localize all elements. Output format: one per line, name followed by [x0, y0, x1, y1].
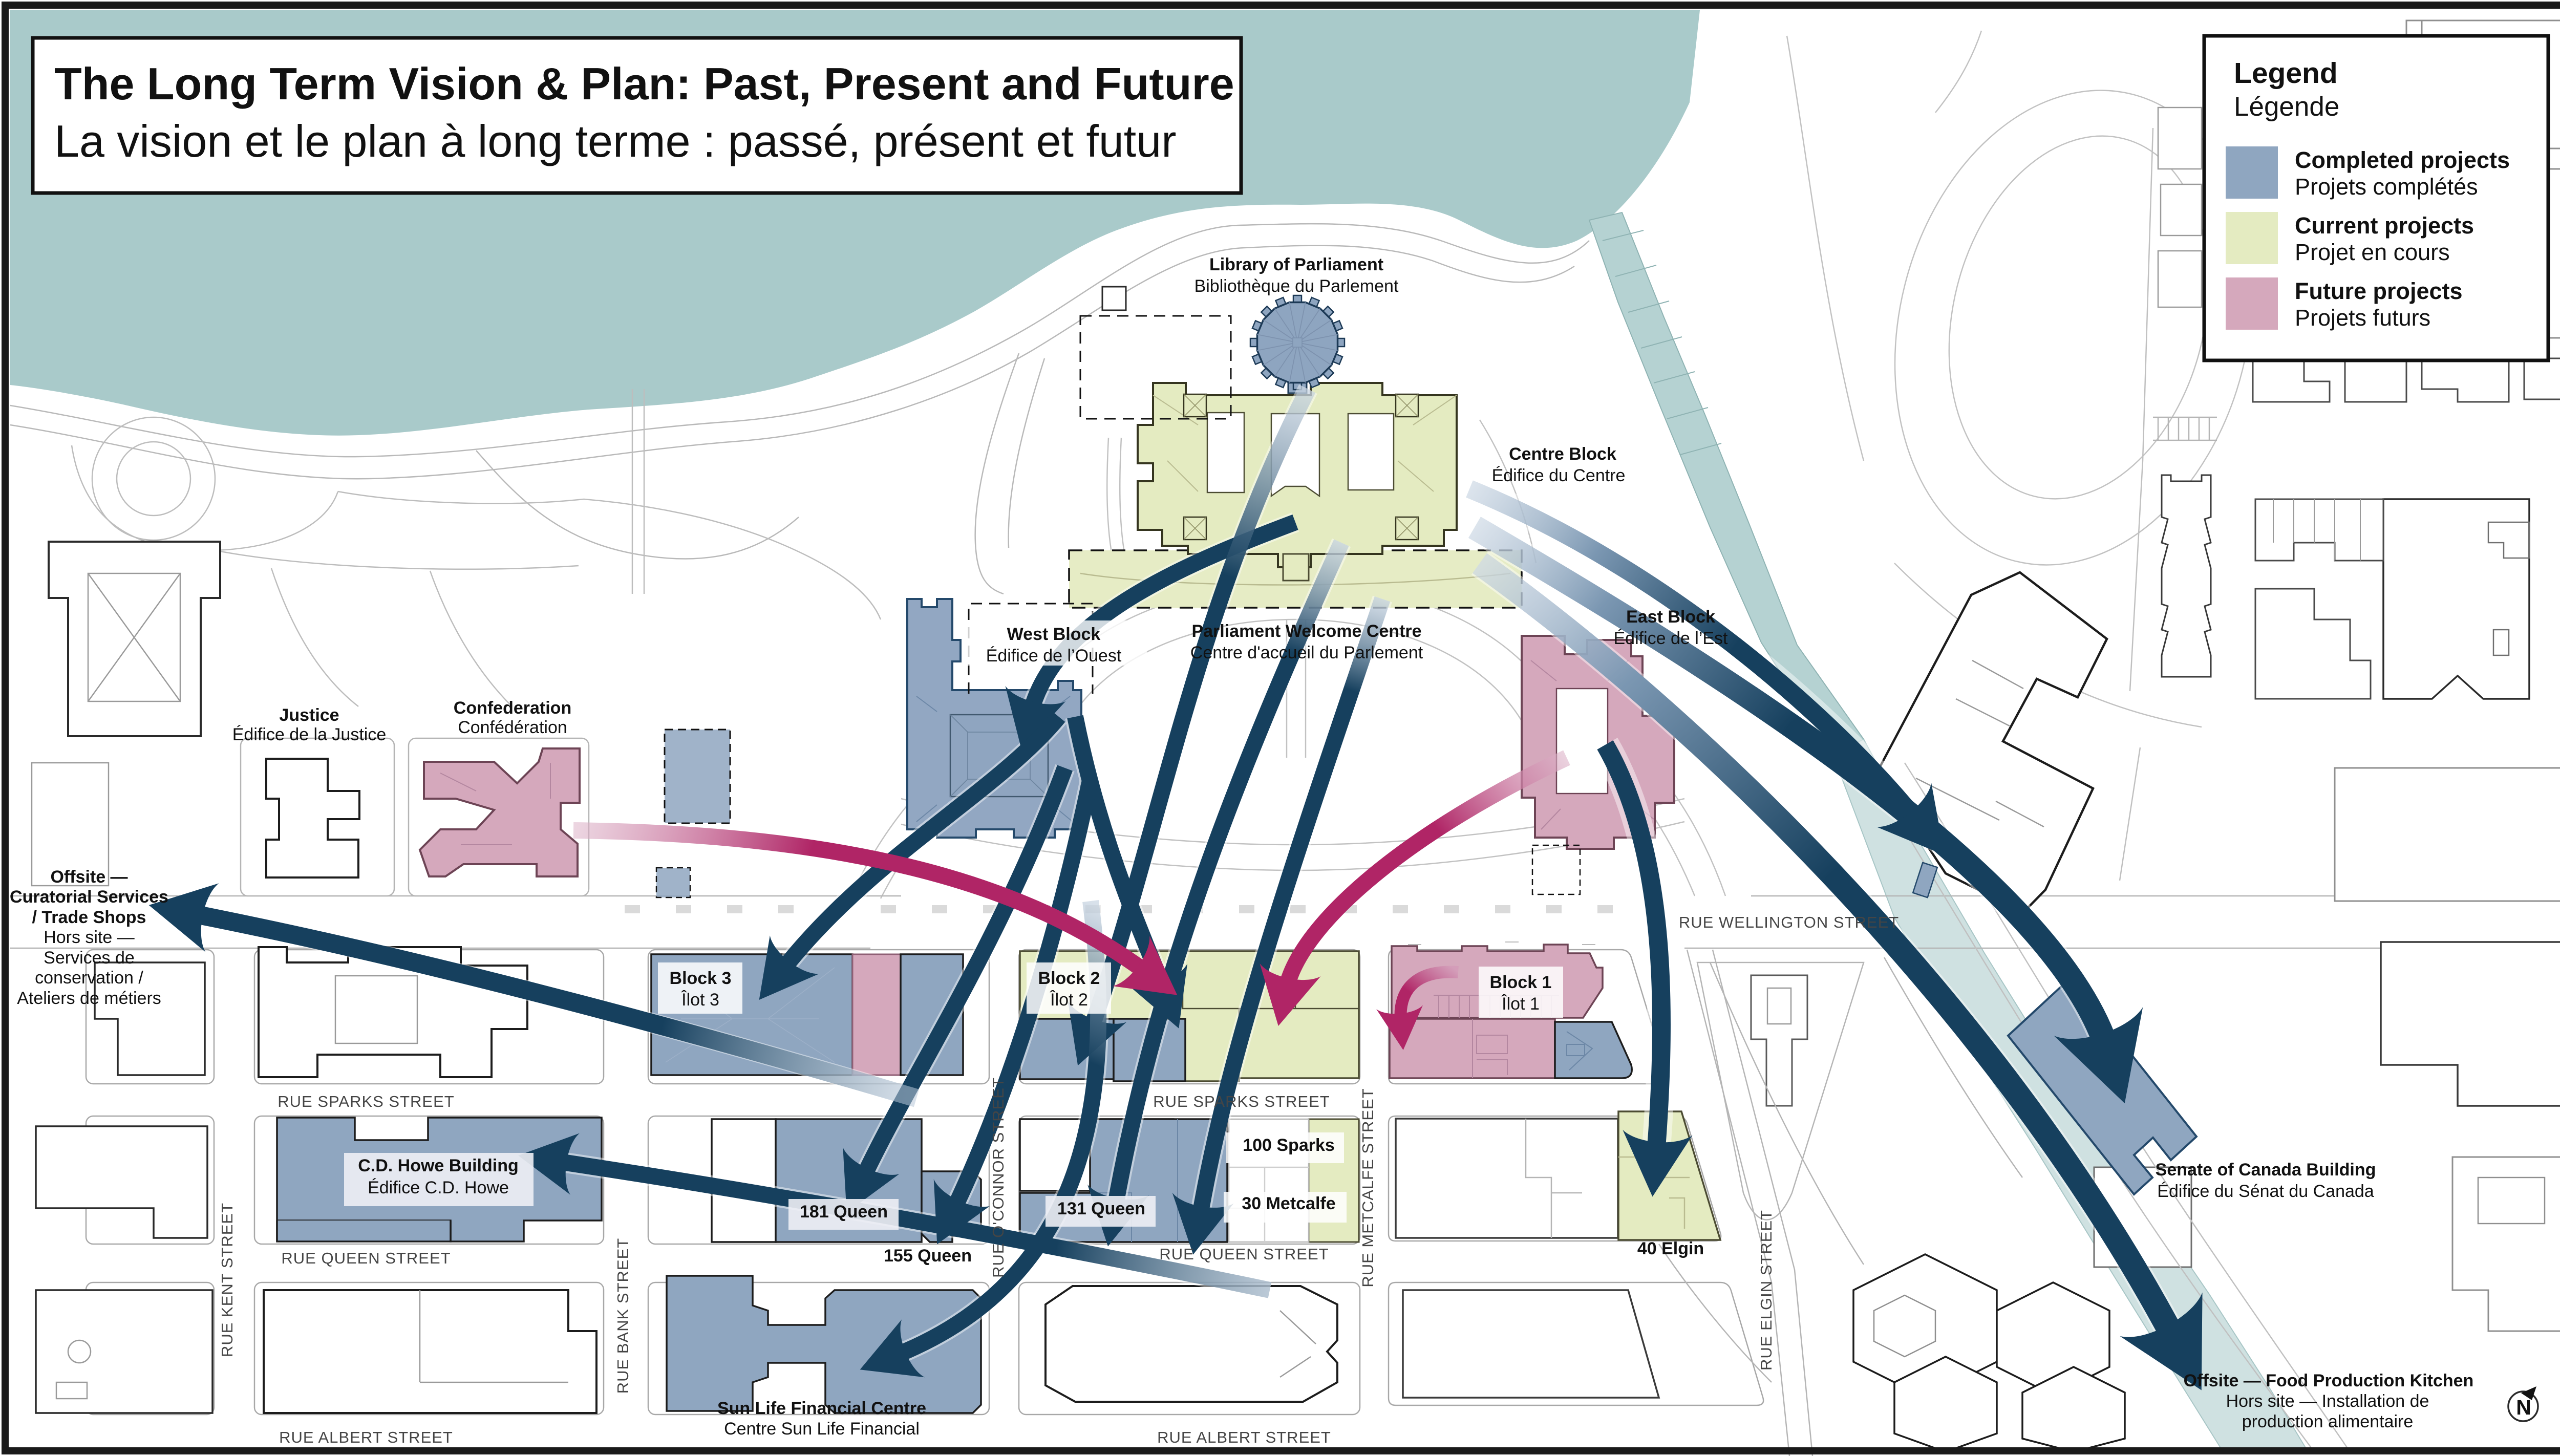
svg-text:Future projects: Future projects: [2295, 278, 2463, 304]
svg-text:Current projects: Current projects: [2295, 212, 2474, 239]
svg-text:RUE QUEEN STREET: RUE QUEEN STREET: [1159, 1245, 1329, 1263]
svg-text:Édifice du Sénat du Canada: Édifice du Sénat du Canada: [2157, 1182, 2374, 1201]
svg-text:Ateliers de métiers: Ateliers de métiers: [17, 989, 161, 1008]
svg-text:Library of Parliament: Library of Parliament: [1209, 255, 1383, 274]
svg-text:Offsite —: Offsite —: [50, 867, 127, 887]
svg-text:/ Trade Shops: / Trade Shops: [32, 908, 146, 927]
svg-text:Édifice de la Justice: Édifice de la Justice: [232, 725, 387, 744]
svg-text:30 Metcalfe: 30 Metcalfe: [1242, 1194, 1335, 1213]
svg-text:100 Sparks: 100 Sparks: [1243, 1136, 1335, 1155]
svg-text:Îlot 3: Îlot 3: [681, 990, 719, 1010]
svg-text:Block 2: Block 2: [1038, 969, 1100, 988]
svg-text:Block 1: Block 1: [1490, 973, 1552, 992]
svg-text:Centre d'accueil du Parlement: Centre d'accueil du Parlement: [1190, 643, 1423, 662]
svg-text:Legend: Legend: [2234, 57, 2338, 90]
svg-text:Édifice de l’Ouest: Édifice de l’Ouest: [986, 646, 1122, 666]
svg-text:RUE ALBERT STREET: RUE ALBERT STREET: [1157, 1428, 1331, 1446]
svg-text:Édifice de l’Est: Édifice de l’Est: [1614, 629, 1729, 648]
svg-text:East Block: East Block: [1626, 607, 1715, 627]
svg-text:Hors site — Installation de: Hors site — Installation de: [2226, 1391, 2429, 1411]
svg-text:Légende: Légende: [2234, 92, 2339, 122]
svg-text:Projet en cours: Projet en cours: [2295, 239, 2450, 265]
svg-text:Offsite — Food Production Kitc: Offsite — Food Production Kitchen: [2184, 1371, 2474, 1390]
svg-text:155 Queen: 155 Queen: [884, 1246, 972, 1266]
svg-text:Completed projects: Completed projects: [2295, 147, 2510, 173]
svg-text:Édifice C.D. Howe: Édifice C.D. Howe: [368, 1178, 509, 1197]
svg-text:N: N: [2516, 1396, 2531, 1419]
svg-text:West Block: West Block: [1007, 625, 1101, 644]
svg-text:Bibliothèque du Parlement: Bibliothèque du Parlement: [1194, 276, 1399, 296]
svg-text:conservation /: conservation /: [35, 968, 143, 988]
svg-text:Centre Block: Centre Block: [1509, 444, 1616, 464]
svg-text:The Long Term Vision & Plan: P: The Long Term Vision & Plan: Past, Prese…: [54, 58, 1234, 109]
svg-text:RUE QUEEN STREET: RUE QUEEN STREET: [281, 1249, 451, 1267]
svg-text:Parliament Welcome Centre: Parliament Welcome Centre: [1191, 622, 1421, 641]
svg-text:Services de: Services de: [44, 948, 135, 968]
svg-text:RUE ELGIN STREET: RUE ELGIN STREET: [1757, 1210, 1775, 1371]
svg-text:Projets futurs: Projets futurs: [2295, 305, 2430, 331]
svg-text:Sun Life Financial Centre: Sun Life Financial Centre: [717, 1399, 926, 1418]
svg-text:Confederation: Confederation: [454, 698, 571, 718]
svg-text:La vision et le plan à long te: La vision et le plan à long terme : pass…: [54, 116, 1177, 166]
svg-text:Hors site —: Hors site —: [44, 928, 135, 947]
svg-text:Justice: Justice: [279, 705, 339, 725]
svg-text:Curatorial Services: Curatorial Services: [10, 887, 168, 907]
svg-text:Îlot 2: Îlot 2: [1050, 990, 1088, 1010]
svg-text:Senate of Canada Building: Senate of Canada Building: [2156, 1160, 2376, 1180]
svg-text:Édifice du Centre: Édifice du Centre: [1492, 466, 1626, 485]
svg-text:RUE KENT STREET: RUE KENT STREET: [218, 1203, 236, 1357]
svg-text:181 Queen: 181 Queen: [800, 1202, 888, 1222]
svg-text:Block 3: Block 3: [670, 969, 732, 988]
svg-text:131 Queen: 131 Queen: [1057, 1199, 1145, 1218]
svg-text:RUE METCALFE STREET: RUE METCALFE STREET: [1359, 1088, 1377, 1287]
svg-text:RUE SPARKS STREET: RUE SPARKS STREET: [1153, 1093, 1330, 1110]
svg-text:Îlot 1: Îlot 1: [1501, 994, 1540, 1014]
svg-text:40 Elgin: 40 Elgin: [1637, 1239, 1704, 1258]
svg-text:RUE ALBERT STREET: RUE ALBERT STREET: [279, 1428, 453, 1446]
svg-text:RUE WELLINGTON STREET: RUE WELLINGTON STREET: [1679, 913, 1899, 931]
svg-text:Projets complétés: Projets complétés: [2295, 174, 2478, 200]
svg-text:RUE O'CONNOR STREET: RUE O'CONNOR STREET: [989, 1077, 1007, 1278]
svg-text:Centre Sun Life Financial: Centre Sun Life Financial: [724, 1419, 920, 1439]
svg-text:RUE SPARKS STREET: RUE SPARKS STREET: [278, 1093, 454, 1110]
svg-text:production alimentaire: production alimentaire: [2242, 1412, 2414, 1431]
svg-text:Confédération: Confédération: [458, 718, 567, 737]
svg-text:RUE BANK STREET: RUE BANK STREET: [614, 1238, 632, 1394]
svg-text:C.D. Howe Building: C.D. Howe Building: [358, 1156, 519, 1175]
